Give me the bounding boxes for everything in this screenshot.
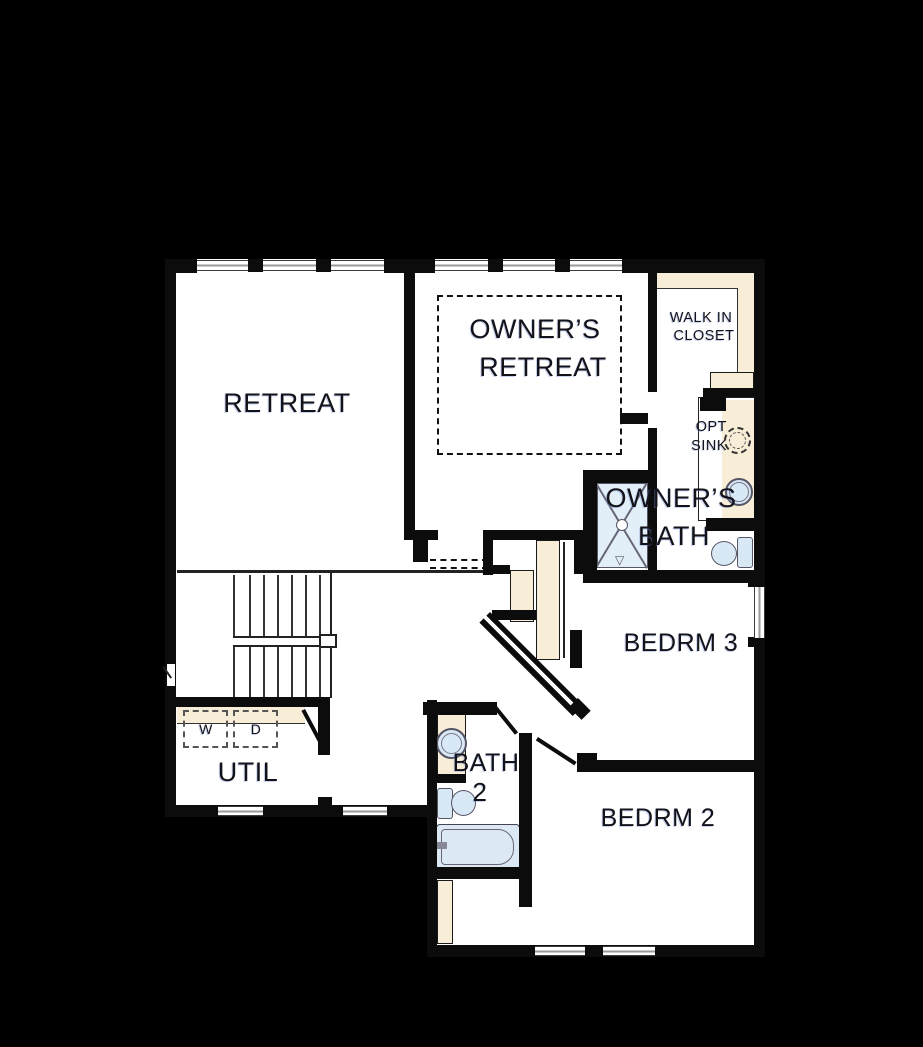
shower-drain (616, 519, 628, 531)
owners-toilet-tank (737, 537, 753, 568)
room-label-bath2-2: 2 (473, 777, 488, 808)
stair-tread (233, 575, 235, 637)
wall-wd (175, 697, 330, 707)
closet-shelf (710, 372, 754, 389)
wall (483, 565, 510, 574)
window-util-1 (218, 806, 263, 816)
window-sill (748, 637, 765, 647)
window-bedrm3 (754, 587, 765, 638)
stair-tread (305, 575, 307, 637)
room-label-util: UTIL (218, 757, 279, 788)
stair-tread (319, 647, 321, 697)
stair-tread (277, 647, 279, 697)
window-mullion (316, 259, 331, 272)
stair-tread (319, 575, 321, 637)
window-bedrm2-1 (535, 946, 585, 956)
wall-left-exterior (165, 259, 176, 817)
wall-nub (318, 797, 332, 806)
wall (413, 540, 428, 562)
window-mullion (488, 259, 503, 272)
room-label-bedrm3: BEDRM 3 (624, 629, 739, 658)
closet-front-line (563, 542, 565, 658)
window-mullion (248, 259, 263, 272)
wall-bottom-util (165, 805, 437, 817)
wall-bath2-right (519, 733, 532, 907)
room-label-walk-in-closet-1: WALK IN (670, 310, 733, 326)
wall-under-tub (427, 867, 520, 879)
stair-tread (233, 647, 235, 697)
wall (492, 610, 536, 620)
stair-tread (263, 575, 265, 637)
wall-bath2-exterior (427, 700, 437, 957)
label-washer: W (199, 721, 213, 737)
stair-landing-edge (319, 634, 337, 648)
linen-closet (536, 540, 560, 660)
label-opt-sink-1: OPT (696, 419, 727, 435)
wall-bottom-bedrm2 (427, 945, 765, 957)
wall-jamb (620, 413, 648, 424)
door-hinge-block (577, 753, 597, 765)
room-label-walk-in-closet-2: CLOSET (673, 328, 734, 344)
stair-landing (233, 636, 322, 647)
shower-door-mark: ▽ (615, 553, 624, 567)
room-label-retreat: RETREAT (223, 388, 351, 419)
room-label-bath2-1: BATH (453, 749, 520, 778)
stair-tread (249, 575, 251, 637)
wall-shower-left (583, 470, 597, 573)
stair-tread (277, 575, 279, 637)
wall-counter-end (700, 397, 726, 411)
window-mullion (555, 259, 570, 272)
wall (404, 530, 438, 540)
floor-plan: ▽ (0, 0, 923, 1047)
wall (706, 518, 765, 531)
closet-shelf (737, 288, 755, 374)
stair-tread (291, 575, 293, 637)
label-opt-sink-2: SINK (691, 438, 727, 454)
label-dryer: D (251, 721, 262, 737)
stair-tread (291, 647, 293, 697)
stair-tread (249, 647, 251, 697)
room-label-owners-bath-2: BATH (638, 521, 710, 552)
closet-shelf (656, 272, 754, 289)
wall (384, 259, 435, 273)
room-label-owners-retreat-2: RETREAT (479, 352, 607, 383)
wall-owners-bath-south (583, 570, 765, 583)
cased-opening-dashed (430, 559, 488, 561)
stair-tread (305, 647, 307, 697)
owners-toilet-bowl (711, 541, 737, 566)
wall (622, 259, 765, 273)
wall-closet-south (703, 388, 765, 397)
room-label-bedrm2: BEDRM 2 (601, 804, 716, 833)
room-label-owners-retreat-1: OWNER’S (470, 314, 601, 345)
wall-bedrm2-top (577, 760, 765, 772)
wall-retreat-divider (404, 272, 415, 532)
window-bedrm2-2 (603, 946, 655, 956)
optional-sink-inner (729, 432, 746, 449)
linen-closet (437, 880, 453, 944)
bathtub-faucet (436, 842, 447, 849)
wall (570, 630, 582, 668)
wall-bath2-top (423, 702, 497, 715)
window-util-2 (343, 806, 387, 816)
room-label-owners-bath-1: OWNER’S (606, 483, 737, 514)
stair-tread (263, 647, 265, 697)
bathtub-inner (441, 829, 514, 865)
cased-opening-dashed (430, 567, 488, 569)
wall-closet (648, 272, 657, 392)
